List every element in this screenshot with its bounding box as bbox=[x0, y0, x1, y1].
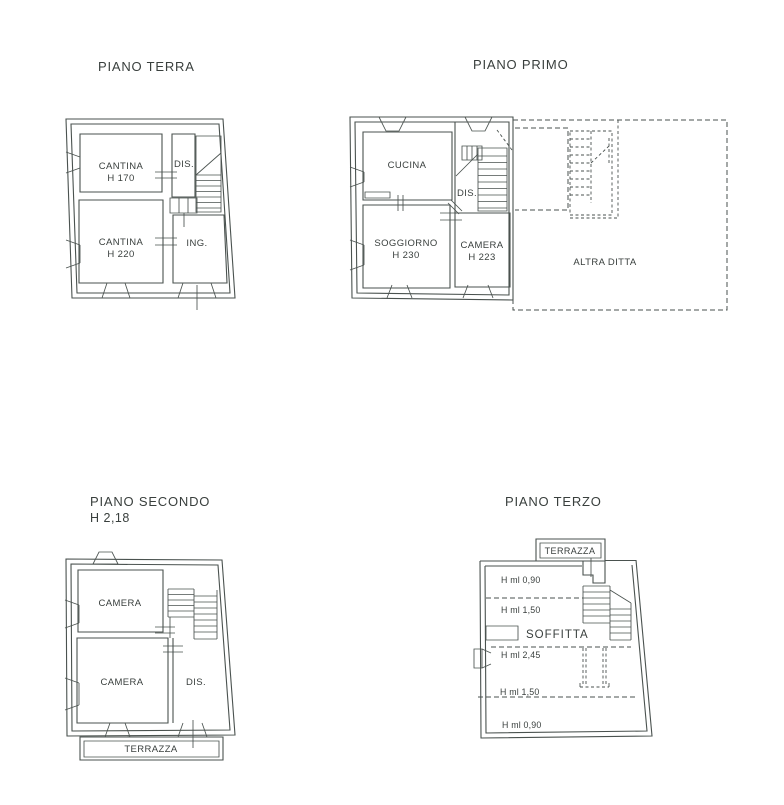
secondo-doors-windows bbox=[65, 600, 207, 748]
secondo-room-labels: CAMERA CAMERA DIS. TERRAZZA bbox=[98, 598, 206, 755]
secondo-stairs-icon bbox=[168, 589, 217, 639]
terra-label-ingresso: ING. bbox=[186, 238, 207, 249]
primo-walls bbox=[350, 117, 513, 300]
floorplan-piano-primo: CUCINA DIS. SOGGIORNO H 230 CAMERA H 223… bbox=[345, 108, 740, 315]
terzo-label-terrazza: TERRAZZA bbox=[545, 546, 596, 556]
terzo-label-soffitta: SOFFITTA bbox=[526, 629, 589, 641]
terra-doors-windows bbox=[66, 152, 216, 310]
terzo-room-labels: TERRAZZA H ml 0,90 H ml 1,50 SOFFITTA H … bbox=[500, 546, 595, 730]
primo-label-cucina: CUCINA bbox=[388, 160, 427, 171]
primo-room-labels: CUCINA DIS. SOGGIORNO H 230 CAMERA H 223… bbox=[374, 160, 636, 268]
floorplan-piano-terra: CANTINA H 170 DIS. CANTINA H 220 ING. bbox=[55, 105, 245, 320]
primo-label-camera-height: H 223 bbox=[468, 252, 495, 263]
terzo-label-h-zone-1: H ml 0,90 bbox=[501, 575, 540, 585]
primo-label-soggiorno: SOGGIORNO bbox=[374, 238, 437, 249]
primo-rooms bbox=[363, 122, 510, 288]
terzo-label-h-zone-3: H ml 2,45 bbox=[501, 650, 540, 660]
terra-room-labels: CANTINA H 170 DIS. CANTINA H 220 ING. bbox=[99, 159, 208, 260]
floorplan-piano-terzo: TERRAZZA H ml 0,90 H ml 1,50 SOFFITTA H … bbox=[470, 525, 665, 750]
primo-label-soggiorno-height: H 230 bbox=[392, 250, 419, 261]
primo-label-camera: CAMERA bbox=[460, 240, 503, 251]
secondo-rooms bbox=[77, 570, 173, 723]
floorplan-piano-secondo: CAMERA CAMERA DIS. TERRAZZA bbox=[55, 550, 255, 765]
terra-label-cantina-bottom: CANTINA bbox=[99, 237, 144, 248]
terra-label-cantina-top: CANTINA bbox=[99, 161, 144, 172]
primo-stairs-icon bbox=[456, 146, 507, 211]
terra-label-cantina-bottom-height: H 220 bbox=[107, 249, 134, 260]
terzo-label-h-zone-2: H ml 1,50 bbox=[501, 605, 540, 615]
secondo-walls bbox=[66, 552, 235, 736]
piano-secondo-title: PIANO SECONDO bbox=[90, 494, 210, 509]
scanned-floorplan-sheet: PIANO TERRA CANTINA H 170 bbox=[0, 0, 784, 805]
piano-terzo-title: PIANO TERZO bbox=[505, 494, 602, 509]
secondo-label-dis: DIS. bbox=[186, 677, 206, 688]
piano-secondo-height: H 2,18 bbox=[90, 511, 130, 525]
terra-rooms bbox=[79, 134, 227, 283]
primo-label-dis: DIS. bbox=[457, 188, 477, 199]
piano-terra-title: PIANO TERRA bbox=[98, 59, 195, 74]
primo-doors-windows bbox=[350, 130, 512, 298]
terzo-label-h-zone-4: H ml 1,50 bbox=[500, 687, 539, 697]
secondo-label-terrazza: TERRAZZA bbox=[124, 744, 178, 755]
terzo-stairs-icon bbox=[583, 558, 631, 640]
terzo-label-h-zone-5: H ml 0,90 bbox=[502, 720, 541, 730]
piano-primo-title: PIANO PRIMO bbox=[473, 57, 568, 72]
secondo-label-camera-bottom: CAMERA bbox=[100, 677, 143, 688]
terra-walls bbox=[66, 119, 235, 298]
terzo-walls bbox=[480, 560, 652, 738]
terra-label-dis: DIS. bbox=[174, 159, 194, 170]
primo-label-altra-ditta: ALTRA DITTA bbox=[573, 257, 636, 268]
secondo-label-camera-top: CAMERA bbox=[98, 598, 141, 609]
primo-altra-ditta-outline bbox=[513, 120, 727, 310]
terra-label-cantina-top-height: H 170 bbox=[107, 173, 134, 184]
